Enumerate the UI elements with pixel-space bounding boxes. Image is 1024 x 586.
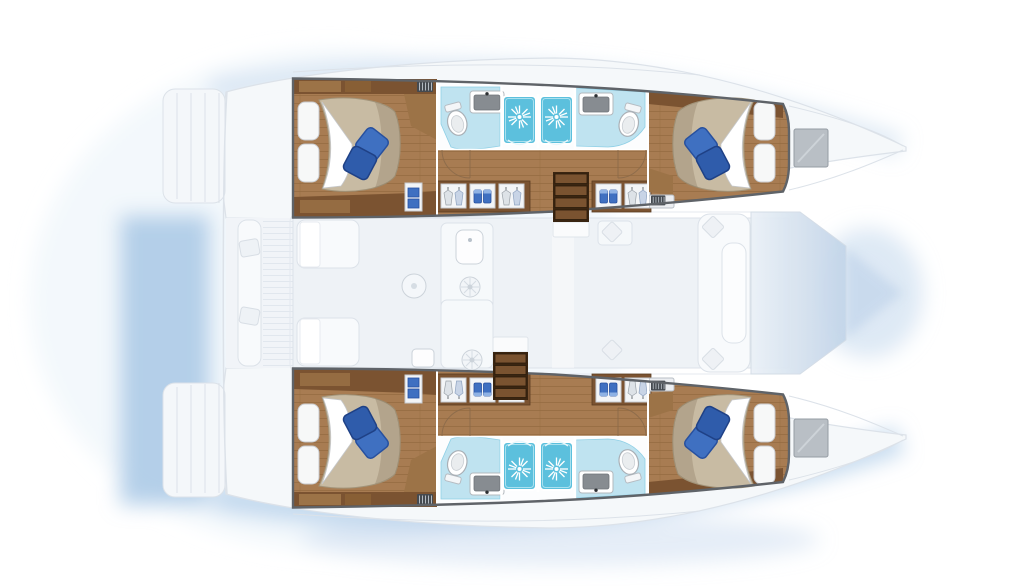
mast-bulkhead-band	[552, 218, 574, 368]
forward-dinette-table	[722, 243, 746, 343]
floor-plan-canvas	[0, 0, 1024, 586]
galley-sink	[456, 230, 483, 264]
forward-bathroom	[540, 88, 645, 147]
wardrobe-niche-shirts	[596, 184, 621, 208]
galley-faucet-icon	[468, 238, 472, 242]
port-hull-interior	[293, 79, 789, 218]
locker-panel	[345, 81, 371, 92]
galley-stove-burner-icon	[462, 350, 482, 370]
aft-bathroom	[441, 87, 536, 149]
locker-panel	[299, 81, 341, 92]
port-swim-platform	[163, 89, 225, 203]
vent-grille-icon	[417, 81, 433, 92]
towel	[408, 199, 419, 208]
starboard-swim-platform	[163, 383, 225, 497]
saloon	[290, 212, 792, 374]
galley-island-top	[300, 222, 320, 267]
washbasin	[579, 93, 613, 115]
double-bed	[673, 98, 775, 191]
locker-panel	[300, 200, 350, 213]
starboard-companionway-steps	[493, 337, 528, 400]
wardrobe-niche-shirts	[470, 184, 495, 208]
steps-landing	[493, 337, 528, 352]
shower-stall	[540, 96, 573, 145]
catamaran-floor-plan	[0, 0, 1024, 586]
saloon-seat-cushion	[300, 319, 320, 364]
aft-cockpit	[226, 218, 295, 368]
galley-sink-small	[412, 349, 434, 367]
galley-round-sink-drain	[411, 283, 417, 289]
starboard-hull-interior	[293, 369, 789, 508]
galley-stove-burner-icon	[460, 277, 480, 297]
washbasin	[470, 91, 504, 113]
double-bed	[298, 98, 400, 191]
steps-landing	[553, 222, 589, 237]
helm-seat	[239, 238, 260, 257]
towel	[408, 188, 419, 197]
wardrobe-niche-hangers	[499, 184, 524, 208]
wardrobe-niche-hangers	[441, 184, 466, 208]
shower-stall	[503, 96, 536, 145]
port-companionway-steps	[553, 172, 589, 237]
helm-seat	[239, 307, 260, 326]
